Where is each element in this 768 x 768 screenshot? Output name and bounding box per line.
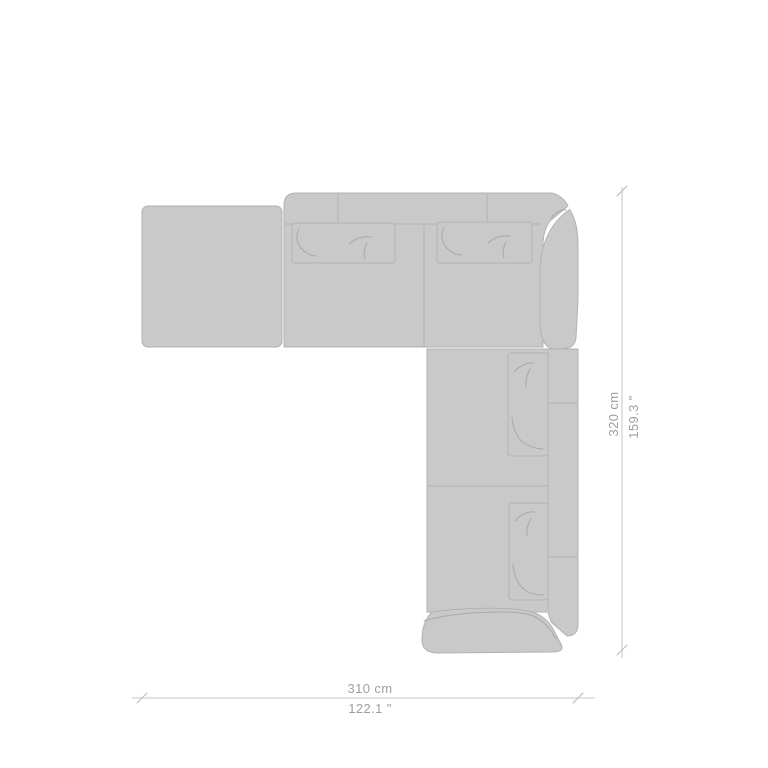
width-label-inches: 122.1 " [348, 701, 392, 716]
height-label-cm: 320 cm [606, 391, 621, 436]
back-cushion-2 [437, 222, 532, 263]
sofa-chaise-section [142, 206, 282, 347]
end-armrest-cushion [422, 608, 562, 653]
height-dimension: 320 cm 159.3 " [606, 186, 641, 658]
width-label-cm: 310 cm [347, 681, 392, 696]
armrest-cushion-body [422, 608, 562, 653]
back-cushion-1 [292, 223, 395, 263]
corner-back-cushion [540, 210, 578, 350]
back-cushion-3 [508, 353, 548, 456]
sofa-right-section-body [427, 349, 578, 636]
sofa-top-section-body [284, 193, 568, 347]
height-label-inches: 159.3 " [626, 395, 641, 439]
width-dimension: 310 cm 122.1 " [132, 681, 595, 716]
back-cushion-4 [509, 503, 548, 600]
product-drawing-canvas: 320 cm 159.3 " 310 cm 122.1 " [0, 0, 768, 768]
sofa-top-view-drawing: 320 cm 159.3 " 310 cm 122.1 " [0, 0, 768, 768]
